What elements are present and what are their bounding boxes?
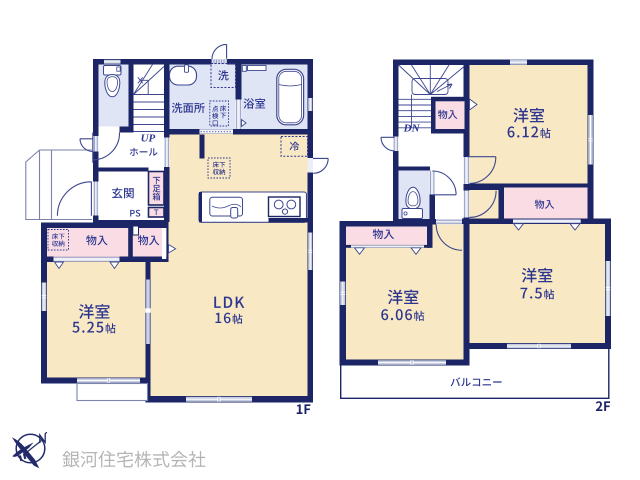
svg-text:DN: DN: [403, 123, 421, 135]
svg-text:UP: UP: [141, 133, 156, 145]
